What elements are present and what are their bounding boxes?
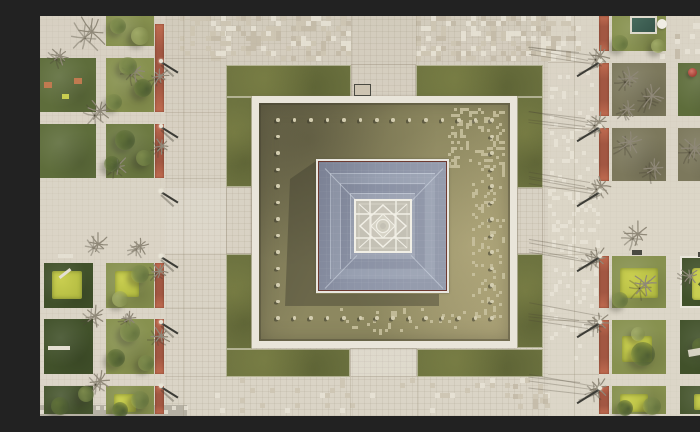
mosaic-tile (306, 46, 311, 51)
mosaic-tile (481, 282, 484, 285)
mosaic-tile (200, 16, 205, 21)
mosaic-tile (487, 225, 490, 228)
lamp-post (600, 322, 601, 323)
mosaic-tile (570, 272, 574, 276)
mosaic-tile (276, 26, 281, 31)
mosaic-tile (172, 406, 176, 410)
bare-tree (676, 262, 700, 290)
mosaic-tile (190, 31, 195, 36)
mosaic-tile (516, 46, 521, 51)
mosaic-tile (518, 404, 523, 409)
bench (632, 250, 642, 255)
mosaic-tile (231, 26, 236, 31)
mosaic-tile (457, 141, 460, 144)
tree-shadow-streaks (528, 316, 598, 336)
mosaic-tile (531, 21, 536, 26)
mosaic-tile (552, 224, 556, 228)
lawn-ring-segment (416, 65, 543, 97)
mosaic-tile (379, 332, 382, 335)
mosaic-tile (520, 378, 525, 383)
lamp-post (161, 386, 162, 387)
mosaic-tile (536, 21, 541, 26)
mosaic-tile (491, 41, 496, 46)
mosaic-tile (301, 21, 306, 26)
mosaic-tile (321, 41, 326, 46)
mosaic-tile (546, 41, 551, 46)
pond (630, 16, 657, 34)
mosaic-tile (550, 336, 554, 340)
mosaic-tile (491, 56, 496, 61)
mosaic-tile (531, 26, 536, 31)
mosaic-tile (220, 408, 225, 413)
mosaic-tile (481, 111, 484, 114)
seam-line (350, 377, 351, 416)
bench (48, 346, 70, 350)
mosaic-tile (421, 308, 424, 311)
mosaic-tile (566, 159, 570, 163)
mosaic-tile (499, 132, 502, 135)
mosaic-tile (566, 147, 570, 151)
mosaic-tile (493, 270, 496, 273)
mosaic-tile (471, 46, 476, 51)
mosaic-tile (205, 16, 210, 21)
mosaic-tile (431, 16, 436, 21)
mosaic-tile (521, 51, 526, 56)
leafy-tree (138, 355, 154, 371)
mosaic-tile (481, 246, 484, 249)
leafy-tree (612, 35, 628, 51)
mosaic-tile (493, 309, 496, 312)
mosaic-tile (340, 383, 345, 388)
platform-light-dot (276, 267, 280, 271)
mosaic-tile (566, 139, 570, 143)
mosaic-tile (421, 26, 426, 31)
bare-tree-branches (83, 229, 113, 259)
mosaic-tile (410, 378, 415, 383)
mosaic-tile (472, 183, 475, 186)
mosaic-tile (435, 393, 440, 398)
mosaic-tile (502, 153, 505, 156)
mosaic-tile (491, 21, 496, 26)
mosaic-tile (501, 16, 506, 21)
mosaic-tile (521, 31, 526, 36)
speckle-bottom-plaza (200, 378, 558, 414)
mosaic-tile (367, 323, 370, 326)
mosaic-tile (400, 329, 403, 332)
seam-line (165, 112, 226, 113)
mosaic-tile (499, 186, 502, 189)
mosaic-tile (336, 26, 341, 31)
mosaic-tile (511, 16, 516, 21)
mosaic-tile (454, 326, 457, 329)
mosaic-tile (220, 41, 225, 46)
mosaic-tile (551, 36, 556, 41)
mosaic-tile (586, 280, 590, 284)
mosaic-tile (436, 56, 441, 61)
mosaic-tile (466, 56, 471, 61)
mosaic-tile (675, 39, 680, 44)
mosaic-tile (266, 36, 271, 41)
lamp-post (161, 322, 162, 323)
platform-light-dot (424, 316, 428, 320)
mosaic-tile (476, 31, 481, 36)
mosaic-tile (346, 46, 351, 51)
mosaic-tile (499, 303, 502, 306)
mosaic-tile (316, 56, 321, 61)
mosaic-tile (373, 329, 376, 332)
yellow-seat (62, 94, 69, 99)
leafy-tree (112, 291, 128, 307)
mosaic-tile (592, 208, 596, 212)
mosaic-tile (588, 228, 592, 232)
mosaic-tile (490, 177, 493, 180)
mosaic-tile (461, 31, 466, 36)
leafy-tree (617, 400, 633, 416)
mosaic-tile (513, 394, 518, 399)
mosaic-tile (478, 162, 481, 165)
platform-light-dot (490, 250, 494, 254)
mosaic-tile (490, 383, 495, 388)
mosaic-tile (451, 51, 456, 56)
mosaic-tile (246, 16, 251, 21)
mosaic-tile (501, 36, 506, 41)
mosaic-tile (501, 31, 506, 36)
mosaic-tile (276, 36, 281, 41)
mosaic-tile (448, 135, 451, 138)
mosaic-tile (502, 129, 505, 132)
platform-light-dot (276, 168, 280, 172)
mosaic-tile (578, 300, 582, 304)
mosaic-tile (506, 31, 511, 36)
seam-line (165, 58, 226, 59)
mosaic-tile (409, 320, 412, 323)
mosaic-tile (518, 394, 523, 399)
platform-light-dot (490, 217, 494, 221)
mosaic-tile (550, 87, 554, 91)
mosaic-tile (541, 41, 546, 46)
mosaic-tile (301, 26, 306, 31)
left-walkway-outline (226, 187, 252, 254)
mosaic-tile (271, 31, 276, 36)
garden-plot (680, 386, 700, 414)
mosaic-tile (554, 139, 558, 143)
mosaic-tile (246, 46, 251, 51)
mosaic-tile (306, 41, 311, 46)
lamp-post (600, 191, 601, 192)
mosaic-tile (481, 300, 484, 303)
mosaic-tile (471, 16, 476, 21)
lamp-head (598, 59, 602, 63)
lawn-ring-segment (226, 65, 351, 97)
mosaic-tile (550, 159, 554, 163)
mosaic-tile (594, 159, 598, 163)
mosaic-tile (463, 311, 466, 314)
mosaic-tile (502, 276, 505, 279)
mosaic-tile (502, 147, 505, 150)
mosaic-tile (502, 240, 505, 243)
mosaic-tile (246, 21, 251, 26)
mosaic-tile (436, 51, 441, 56)
mosaic-tile (256, 36, 261, 41)
mosaic-tile (472, 228, 475, 231)
mosaic-tile (493, 198, 496, 201)
mosaic-tile (195, 21, 200, 26)
mosaic-tile (465, 388, 470, 393)
lamp-post (161, 61, 162, 62)
mosaic-tile (487, 192, 490, 195)
mosaic-tile (493, 276, 496, 279)
platform-light-dot (490, 168, 494, 172)
lamp-head (159, 254, 163, 258)
mosaic-tile (436, 46, 441, 51)
mosaic-tile (246, 36, 251, 41)
mosaic-tile (511, 31, 516, 36)
mosaic-tile (311, 26, 316, 31)
mosaic-tile (373, 320, 376, 323)
leafy-tree (120, 322, 140, 342)
mosaic-tile (385, 329, 388, 332)
mosaic-tile (594, 292, 598, 296)
platform-light-dot (474, 118, 478, 122)
mosaic-tile (481, 129, 484, 132)
mosaic-tile (295, 388, 300, 393)
mosaic-tile (484, 312, 487, 315)
mosaic-tile (560, 224, 564, 228)
mosaic-tile (421, 46, 426, 51)
mosaic-tile (502, 219, 505, 222)
mosaic-tile (436, 16, 441, 21)
mosaic-tile (431, 46, 436, 51)
lamp-post (161, 191, 162, 192)
mosaic-tile (578, 175, 582, 179)
mosaic-tile (475, 383, 480, 388)
bench (58, 254, 73, 258)
seam-line (183, 16, 184, 416)
mosaic-tile (586, 167, 590, 171)
mosaic-tile (511, 56, 516, 61)
mosaic-tile (556, 36, 561, 41)
mosaic-tile (346, 320, 349, 323)
stone-block (354, 84, 371, 96)
bare-tree (639, 152, 671, 184)
mosaic-tile (562, 159, 566, 163)
platform-light-dot (490, 234, 494, 238)
mosaic-tile (461, 36, 466, 41)
left-walkway (165, 188, 226, 254)
platform-light-dot (474, 316, 478, 320)
mosaic-tile (536, 16, 541, 21)
mosaic-tile (487, 204, 490, 207)
mosaic-tile (469, 159, 472, 162)
flower-bed (52, 271, 82, 299)
mosaic-tile (271, 51, 276, 56)
bare-tree (83, 229, 113, 259)
mosaic-tile (560, 236, 564, 240)
mosaic-tile (546, 31, 551, 36)
mosaic-tile (490, 159, 493, 162)
mosaic-tile (236, 16, 241, 21)
mosaic-tile (296, 36, 301, 41)
mosaic-tile (426, 26, 431, 31)
leafy-tree (136, 150, 152, 166)
leafy-tree (612, 292, 628, 308)
mosaic-tile (466, 51, 471, 56)
mosaic-tile (321, 21, 326, 26)
mosaic-tile (582, 296, 586, 300)
mosaic-tile (261, 31, 266, 36)
mosaic-tile (478, 249, 481, 252)
mosaic-tile (460, 111, 463, 114)
mosaic-tile (226, 21, 231, 26)
mosaic-tile (491, 36, 496, 41)
mosaic-tile (490, 237, 493, 240)
mosaic-tile (566, 16, 571, 21)
mosaic-tile (330, 388, 335, 393)
mosaic-tile (675, 34, 680, 39)
mosaic-tile (536, 26, 541, 31)
mosaic-tile (550, 292, 554, 296)
mosaic-tile (306, 26, 311, 31)
mosaic-tile (561, 21, 566, 26)
mosaic-tile (346, 51, 351, 56)
mosaic-tile (490, 147, 493, 150)
mosaic-tile (266, 31, 271, 36)
mosaic-tile (484, 279, 487, 282)
mosaic-tile (511, 51, 516, 56)
lamp-post (600, 126, 601, 127)
mosaic-tile (582, 151, 586, 155)
mosaic-tile (164, 410, 168, 414)
platform-light-dot (276, 283, 280, 287)
mosaic-tile (341, 46, 346, 51)
mosaic-tile (476, 46, 481, 51)
mosaic-tile (341, 16, 346, 21)
platform-light-dot (490, 118, 494, 122)
mosaic-tile (499, 225, 502, 228)
mosaic-tile (566, 300, 570, 304)
mosaic-tile (431, 26, 436, 31)
red-umbrella (688, 68, 697, 77)
mosaic-tile (336, 51, 341, 56)
mosaic-tile (311, 41, 316, 46)
mosaic-tile (506, 16, 511, 21)
platform-light-dot (276, 250, 280, 254)
leafy-tree (631, 327, 645, 341)
mosaic-tile (554, 284, 558, 288)
platform-light-dot (490, 201, 494, 205)
mosaic-tile (296, 16, 301, 21)
mosaic-tile (499, 315, 502, 318)
mosaic-tile (564, 224, 568, 228)
mosaic-tile (215, 393, 220, 398)
platform-speckles (472, 168, 506, 318)
roof-skylight (354, 199, 412, 253)
mosaic-tile (440, 393, 445, 398)
mosaic-tile (580, 220, 584, 224)
bare-tree-branches (614, 95, 642, 123)
mosaic-tile (376, 311, 379, 314)
mosaic-tile (260, 403, 265, 408)
orange-seat (44, 82, 52, 88)
platform-light-dot (490, 300, 494, 304)
mosaic-tile (505, 383, 510, 388)
mosaic-tile (496, 219, 499, 222)
mosaic-tile (481, 180, 484, 183)
mosaic-tile (695, 49, 700, 54)
platform-light-dot (326, 118, 330, 122)
bare-tree-branches (80, 301, 110, 331)
mosaic-tile (481, 222, 484, 225)
platform-light-dot (457, 118, 461, 122)
mosaic-tile (195, 16, 200, 21)
mosaic-tile (296, 26, 301, 31)
mosaic-tile (454, 147, 457, 150)
leafy-tree (104, 156, 120, 172)
bottom-walkway-outline (350, 348, 417, 377)
mosaic-tile (220, 31, 225, 36)
mosaic-tile (266, 26, 271, 31)
leafy-tree (110, 18, 126, 34)
lamp-head (159, 384, 163, 388)
mosaic-tile (490, 378, 495, 383)
mosaic-tile (541, 16, 546, 21)
mosaic-tile (430, 320, 433, 323)
mosaic-tile (251, 36, 256, 41)
mosaic-tile (576, 46, 581, 51)
mosaic-tile (426, 51, 431, 56)
mosaic-tile (475, 192, 478, 195)
platform-light-dot (276, 135, 280, 139)
mosaic-tile (566, 75, 570, 79)
bench (693, 23, 700, 29)
mosaic-tile (321, 46, 326, 51)
mosaic-tile (281, 56, 286, 61)
mosaic-tile (558, 107, 562, 111)
mosaic-tile (558, 280, 562, 284)
leafy-tree (631, 342, 655, 366)
mosaic-tile (475, 216, 478, 219)
mosaic-tile (241, 31, 246, 36)
mosaic-tile (475, 111, 478, 114)
mosaic-tile (306, 56, 311, 61)
seam-line (417, 377, 418, 416)
mosaic-tile (561, 41, 566, 46)
mosaic-tile (550, 308, 554, 312)
mosaic-tile (478, 315, 481, 318)
mosaic-tile (578, 111, 582, 115)
flower-bed (694, 394, 700, 410)
mosaic-tile (554, 87, 558, 91)
platform-light-dot (276, 316, 280, 320)
seam-line (416, 16, 417, 65)
mosaic-tile (426, 36, 431, 41)
mosaic-tile (400, 383, 405, 388)
mosaic-tile (505, 393, 510, 398)
mosaic-tile (460, 123, 463, 126)
mosaic-tile (250, 388, 255, 393)
mosaic-tile (271, 16, 276, 21)
mosaic-tile (436, 36, 441, 41)
mosaic-tile (499, 291, 502, 294)
mosaic-tile (472, 243, 475, 246)
leafy-tree (106, 94, 122, 110)
mosaic-tile (472, 252, 475, 255)
mosaic-tile (491, 31, 496, 36)
mosaic-tile (548, 204, 552, 208)
lamp-head (159, 320, 163, 324)
platform-light-dot (490, 316, 494, 320)
mosaic-tile (541, 36, 546, 41)
